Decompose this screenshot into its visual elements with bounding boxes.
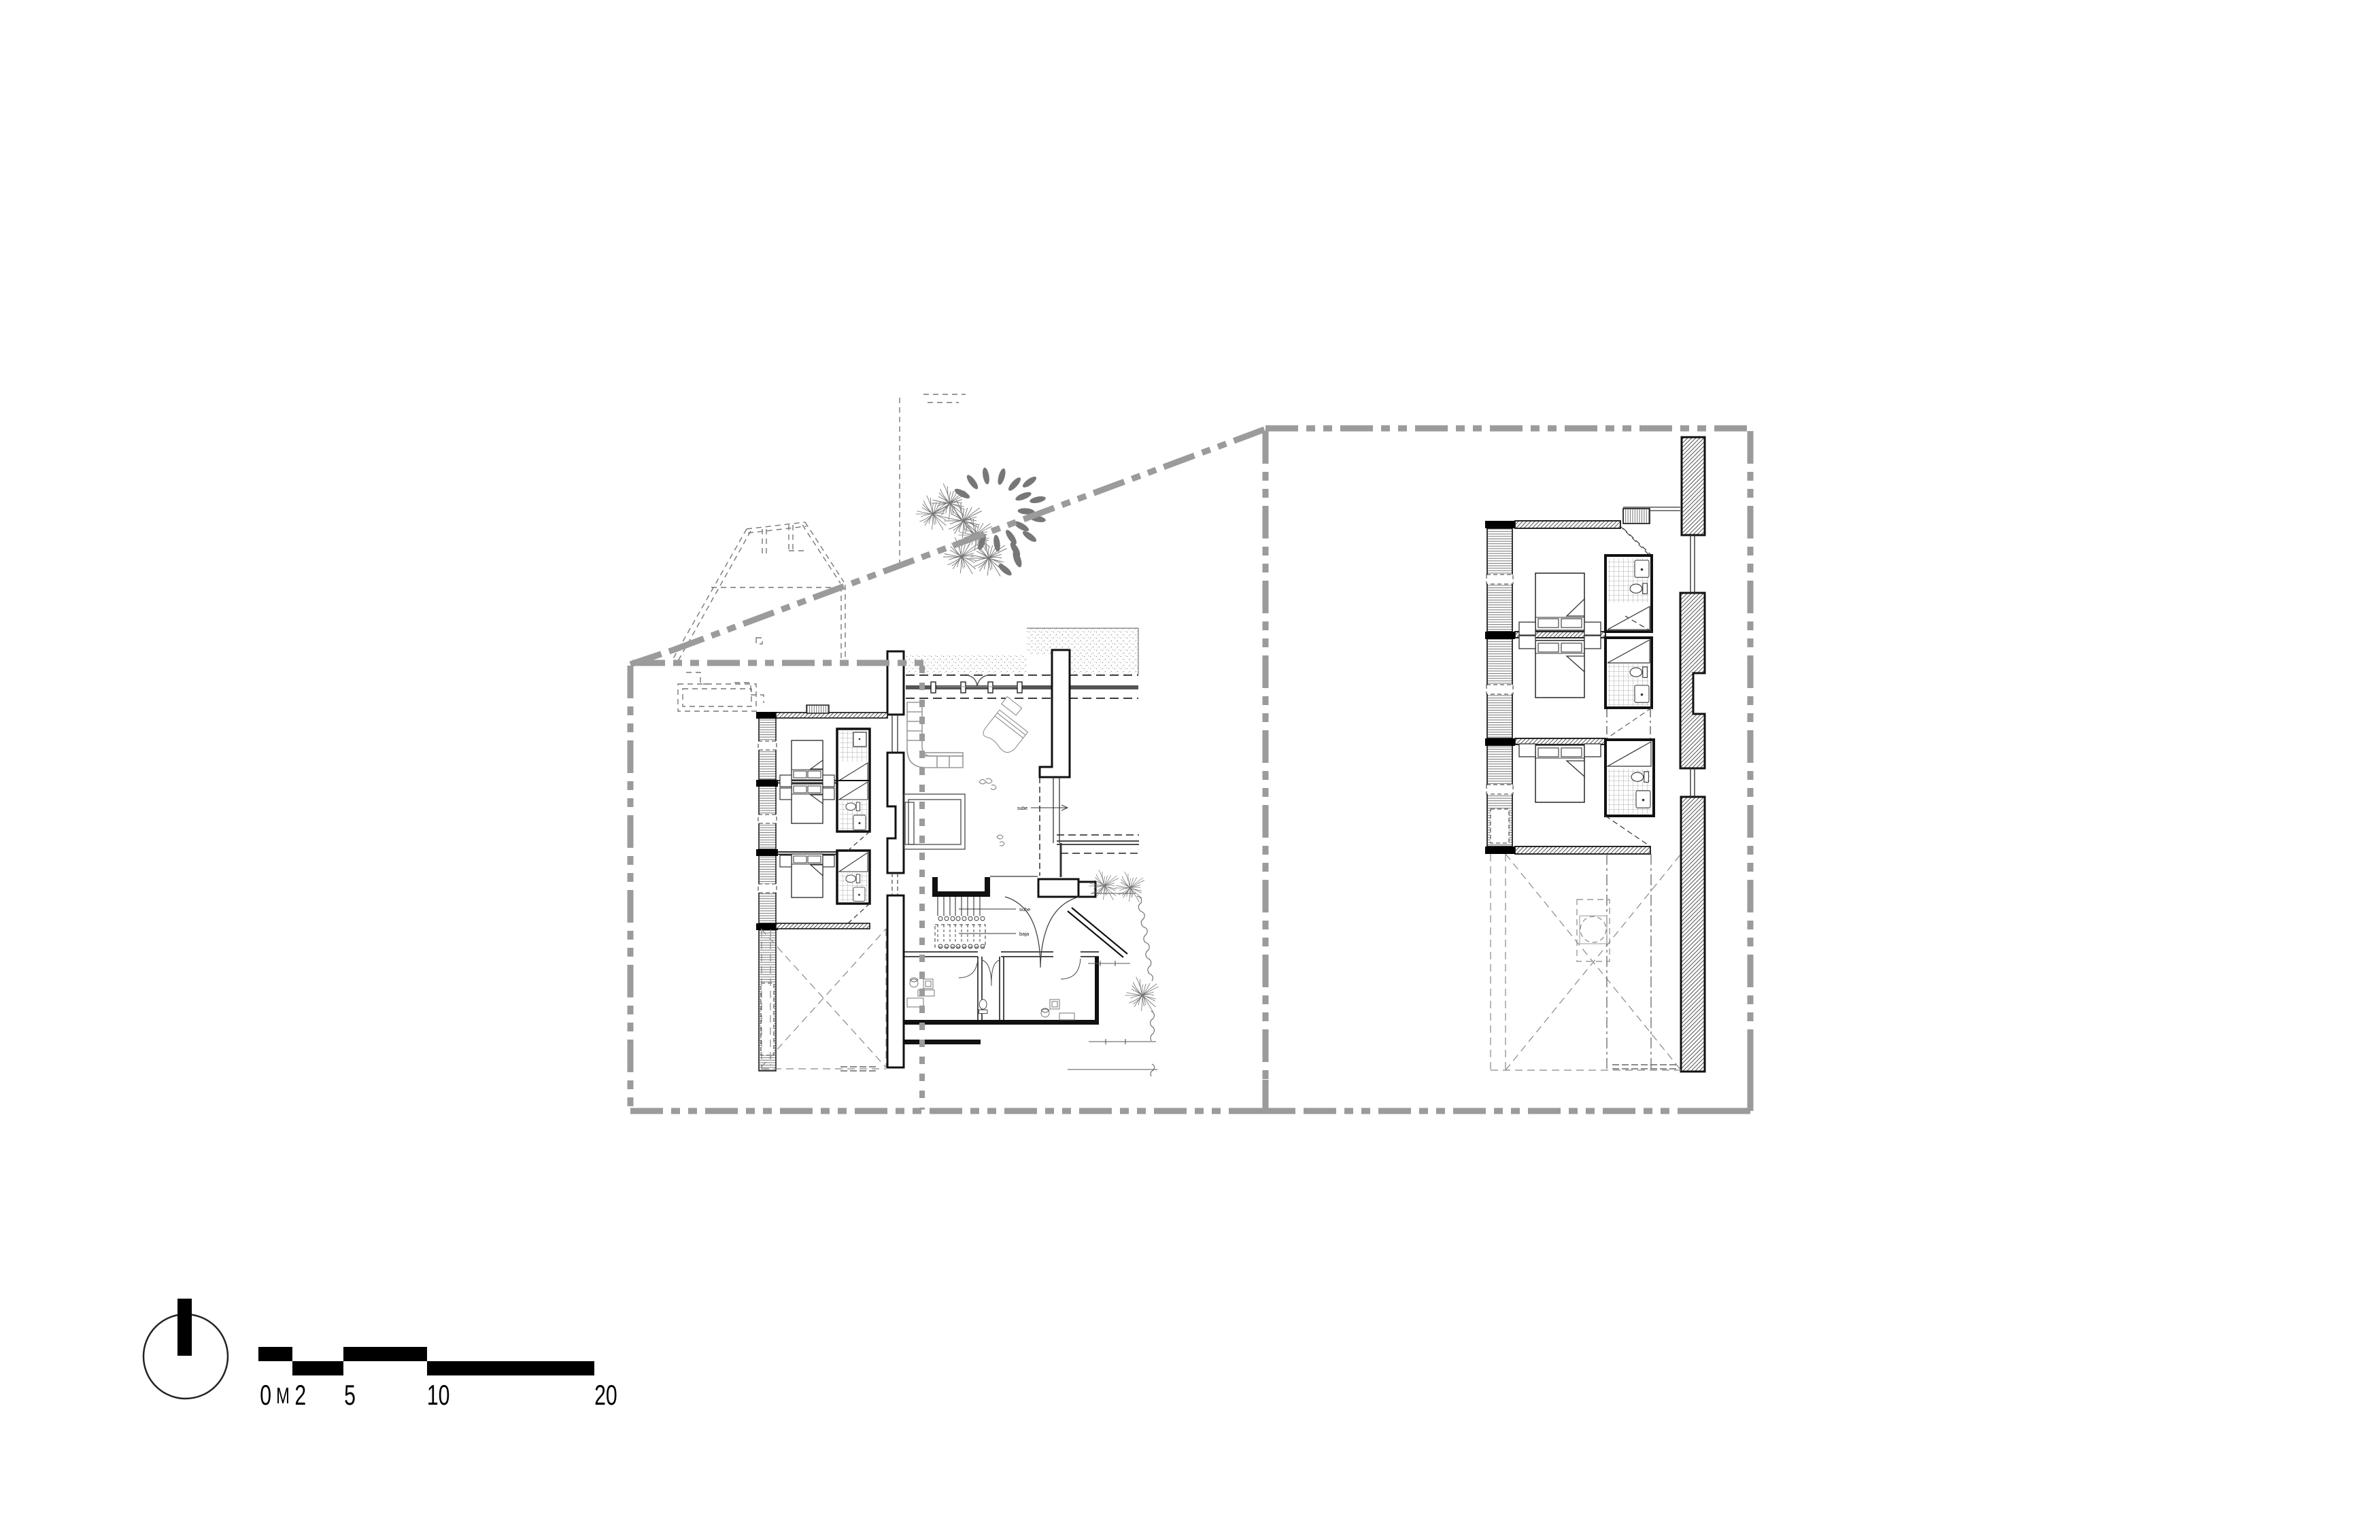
svg-text:baja: baja bbox=[1019, 931, 1030, 937]
svg-text:2: 2 bbox=[294, 1379, 306, 1411]
svg-text:sube: sube bbox=[1017, 805, 1027, 811]
svg-text:0: 0 bbox=[260, 1379, 271, 1411]
svg-text:20: 20 bbox=[594, 1379, 617, 1411]
svg-text:M: M bbox=[276, 1384, 290, 1409]
svg-text:10: 10 bbox=[427, 1379, 450, 1411]
svg-text:5: 5 bbox=[344, 1379, 356, 1411]
